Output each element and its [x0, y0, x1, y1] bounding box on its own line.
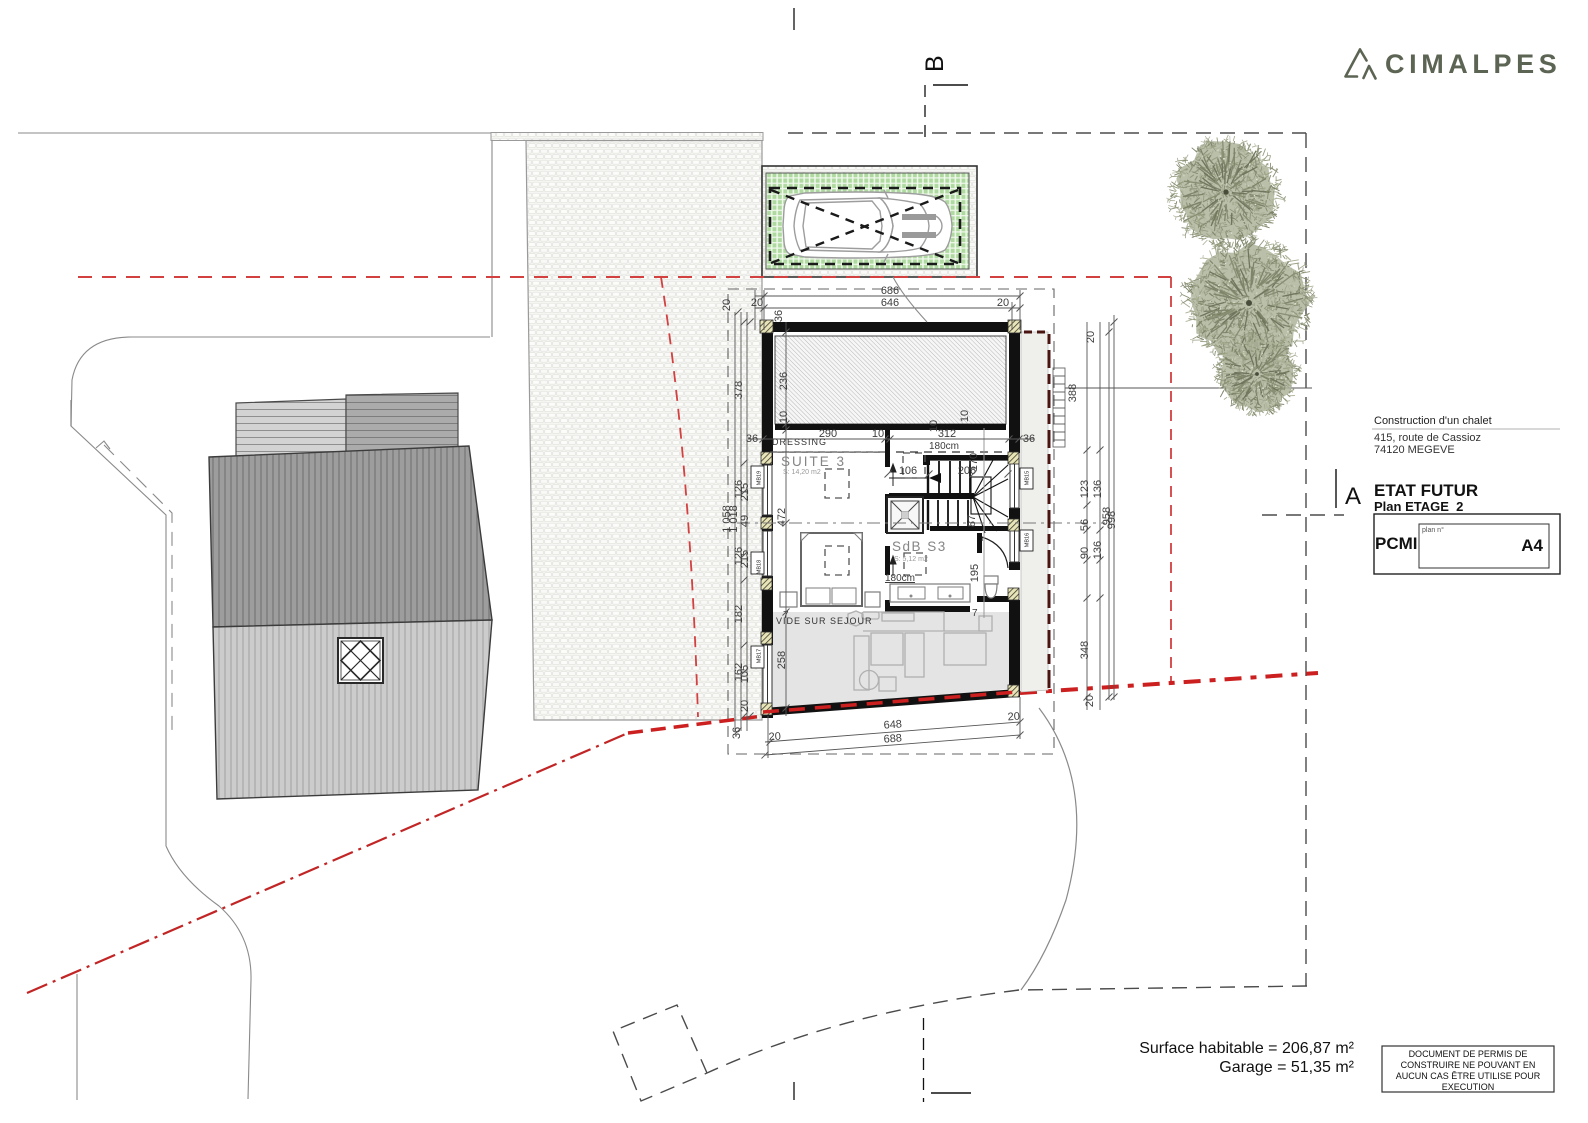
- svg-text:87: 87: [966, 515, 978, 527]
- svg-text:20: 20: [1007, 711, 1020, 724]
- svg-text:136: 136: [1092, 541, 1104, 559]
- svg-text:Garage = 51,35 m²: Garage = 51,35 m²: [1219, 1059, 1354, 1076]
- svg-text:7: 7: [972, 608, 978, 619]
- svg-text:36: 36: [1023, 433, 1035, 445]
- svg-text:36: 36: [731, 727, 743, 739]
- svg-text:SUITE 3: SUITE 3: [781, 454, 846, 469]
- svg-text:CIMALPES: CIMALPES: [1385, 49, 1561, 79]
- svg-text:SdB S3: SdB S3: [892, 539, 947, 554]
- svg-text:MB15: MB15: [1025, 471, 1031, 485]
- svg-text:20: 20: [1085, 331, 1097, 343]
- svg-text:170: 170: [968, 453, 980, 471]
- svg-text:74120 MEGEVE: 74120 MEGEVE: [1374, 444, 1455, 456]
- svg-text:AUCUN CAS ÊTRE UTILISE POUR: AUCUN CAS ÊTRE UTILISE POUR: [1396, 1071, 1541, 1081]
- svg-text:MB19: MB19: [757, 471, 763, 485]
- svg-text:388: 388: [1067, 384, 1079, 402]
- svg-text:MB16: MB16: [1025, 533, 1031, 547]
- svg-text:123: 123: [1079, 480, 1091, 498]
- svg-text:648: 648: [883, 718, 902, 731]
- svg-text:MB17: MB17: [757, 649, 763, 663]
- svg-text:PCMI: PCMI: [1375, 534, 1418, 553]
- svg-text:10: 10: [928, 420, 940, 432]
- svg-text:215: 215: [739, 483, 751, 501]
- svg-text:Plan ETAGE 2: Plan ETAGE 2: [1374, 499, 1463, 514]
- svg-text:EXECUTION: EXECUTION: [1442, 1082, 1495, 1092]
- svg-text:686: 686: [881, 285, 899, 297]
- svg-text:105: 105: [739, 665, 751, 683]
- svg-text:Surface habitable = 206,87 m²: Surface habitable = 206,87 m²: [1139, 1040, 1354, 1057]
- svg-text:415, route de Cassioz: 415, route de Cassioz: [1374, 432, 1481, 444]
- svg-text:49: 49: [739, 515, 751, 527]
- svg-text:A: A: [1345, 483, 1361, 510]
- svg-text:688: 688: [883, 732, 902, 745]
- svg-text:215: 215: [739, 550, 751, 568]
- svg-text:10: 10: [959, 410, 971, 422]
- svg-text:646: 646: [881, 297, 899, 309]
- svg-text:plan n°: plan n°: [1422, 526, 1444, 534]
- svg-text:DRESSING: DRESSING: [772, 437, 827, 447]
- svg-text:20: 20: [768, 731, 781, 744]
- svg-text:20: 20: [1084, 695, 1096, 707]
- svg-text:CONSTRUIRE NE POUVANT EN: CONSTRUIRE NE POUVANT EN: [1401, 1060, 1536, 1070]
- svg-text:20: 20: [739, 700, 751, 712]
- svg-text:236: 236: [778, 372, 790, 390]
- svg-text:S: 14,20 m2: S: 14,20 m2: [783, 469, 821, 476]
- svg-text:DOCUMENT DE PERMIS DE: DOCUMENT DE PERMIS DE: [1409, 1049, 1528, 1059]
- svg-text:312: 312: [938, 428, 956, 440]
- svg-text:195: 195: [969, 564, 981, 582]
- svg-text:182: 182: [733, 605, 745, 623]
- svg-text:20: 20: [721, 299, 733, 311]
- svg-text:Construction d'un chalet: Construction d'un chalet: [1374, 415, 1492, 427]
- svg-text:MB18: MB18: [757, 560, 763, 574]
- svg-text:20: 20: [997, 297, 1009, 309]
- svg-text:998: 998: [1106, 511, 1118, 529]
- svg-text:36: 36: [746, 433, 758, 445]
- svg-text:378: 378: [733, 381, 745, 399]
- svg-text:10: 10: [872, 428, 884, 440]
- svg-text:106: 106: [899, 465, 917, 477]
- svg-text:ETAT FUTUR: ETAT FUTUR: [1374, 481, 1478, 500]
- svg-text:180cm: 180cm: [885, 573, 915, 584]
- svg-text:A4: A4: [1521, 536, 1543, 555]
- svg-text:180cm: 180cm: [929, 441, 959, 452]
- svg-text:348: 348: [1079, 641, 1091, 659]
- svg-text:136: 136: [1092, 480, 1104, 498]
- svg-text:VIDE SUR SEJOUR: VIDE SUR SEJOUR: [776, 616, 873, 626]
- svg-text:B: B: [921, 55, 949, 72]
- svg-text:36: 36: [773, 310, 785, 322]
- svg-text:258: 258: [776, 651, 788, 669]
- svg-text:56: 56: [1079, 519, 1091, 531]
- svg-text:S: 5,12 m2: S: 5,12 m2: [894, 556, 928, 563]
